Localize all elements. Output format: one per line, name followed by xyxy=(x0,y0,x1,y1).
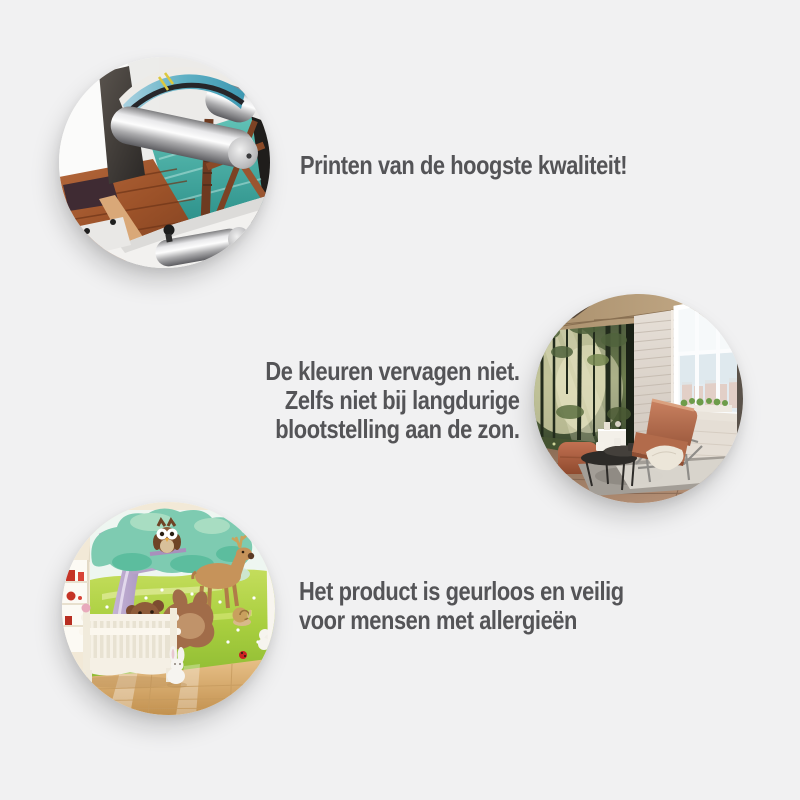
caption-allergy-friendly: Het product is geurloos en veilig voor m… xyxy=(299,577,624,635)
caption-print-quality: Printen van de hoogste kwaliteit! xyxy=(300,151,627,180)
caption-line: blootstelling aan de zon. xyxy=(266,415,520,444)
ladybug xyxy=(239,651,247,659)
crib xyxy=(79,604,181,683)
caption-line: Het product is geurloos en veilig xyxy=(299,577,624,606)
nursery-art xyxy=(62,502,275,715)
white-sheep xyxy=(258,629,275,650)
window xyxy=(676,296,741,422)
printing-machine-art xyxy=(59,57,270,268)
nursery-photo xyxy=(62,502,275,715)
printing-machine-photo xyxy=(59,57,270,268)
window-frame-edge xyxy=(737,322,743,466)
sunlit-interior-art xyxy=(534,294,743,503)
caption-line: Printen van de hoogste kwaliteit! xyxy=(300,151,627,180)
sunlit-interior-photo xyxy=(534,294,743,503)
caption-line: Zelfs niet bij langdurige xyxy=(266,386,520,415)
product-benefits-panel: Printen van de hoogste kwaliteit! xyxy=(0,0,800,800)
caption-line: voor mensen met allergieën xyxy=(299,606,624,635)
caption-line: De kleuren vervagen niet. xyxy=(266,357,520,386)
caption-fade-resistance: De kleuren vervagen niet. Zelfs niet bij… xyxy=(266,357,520,444)
